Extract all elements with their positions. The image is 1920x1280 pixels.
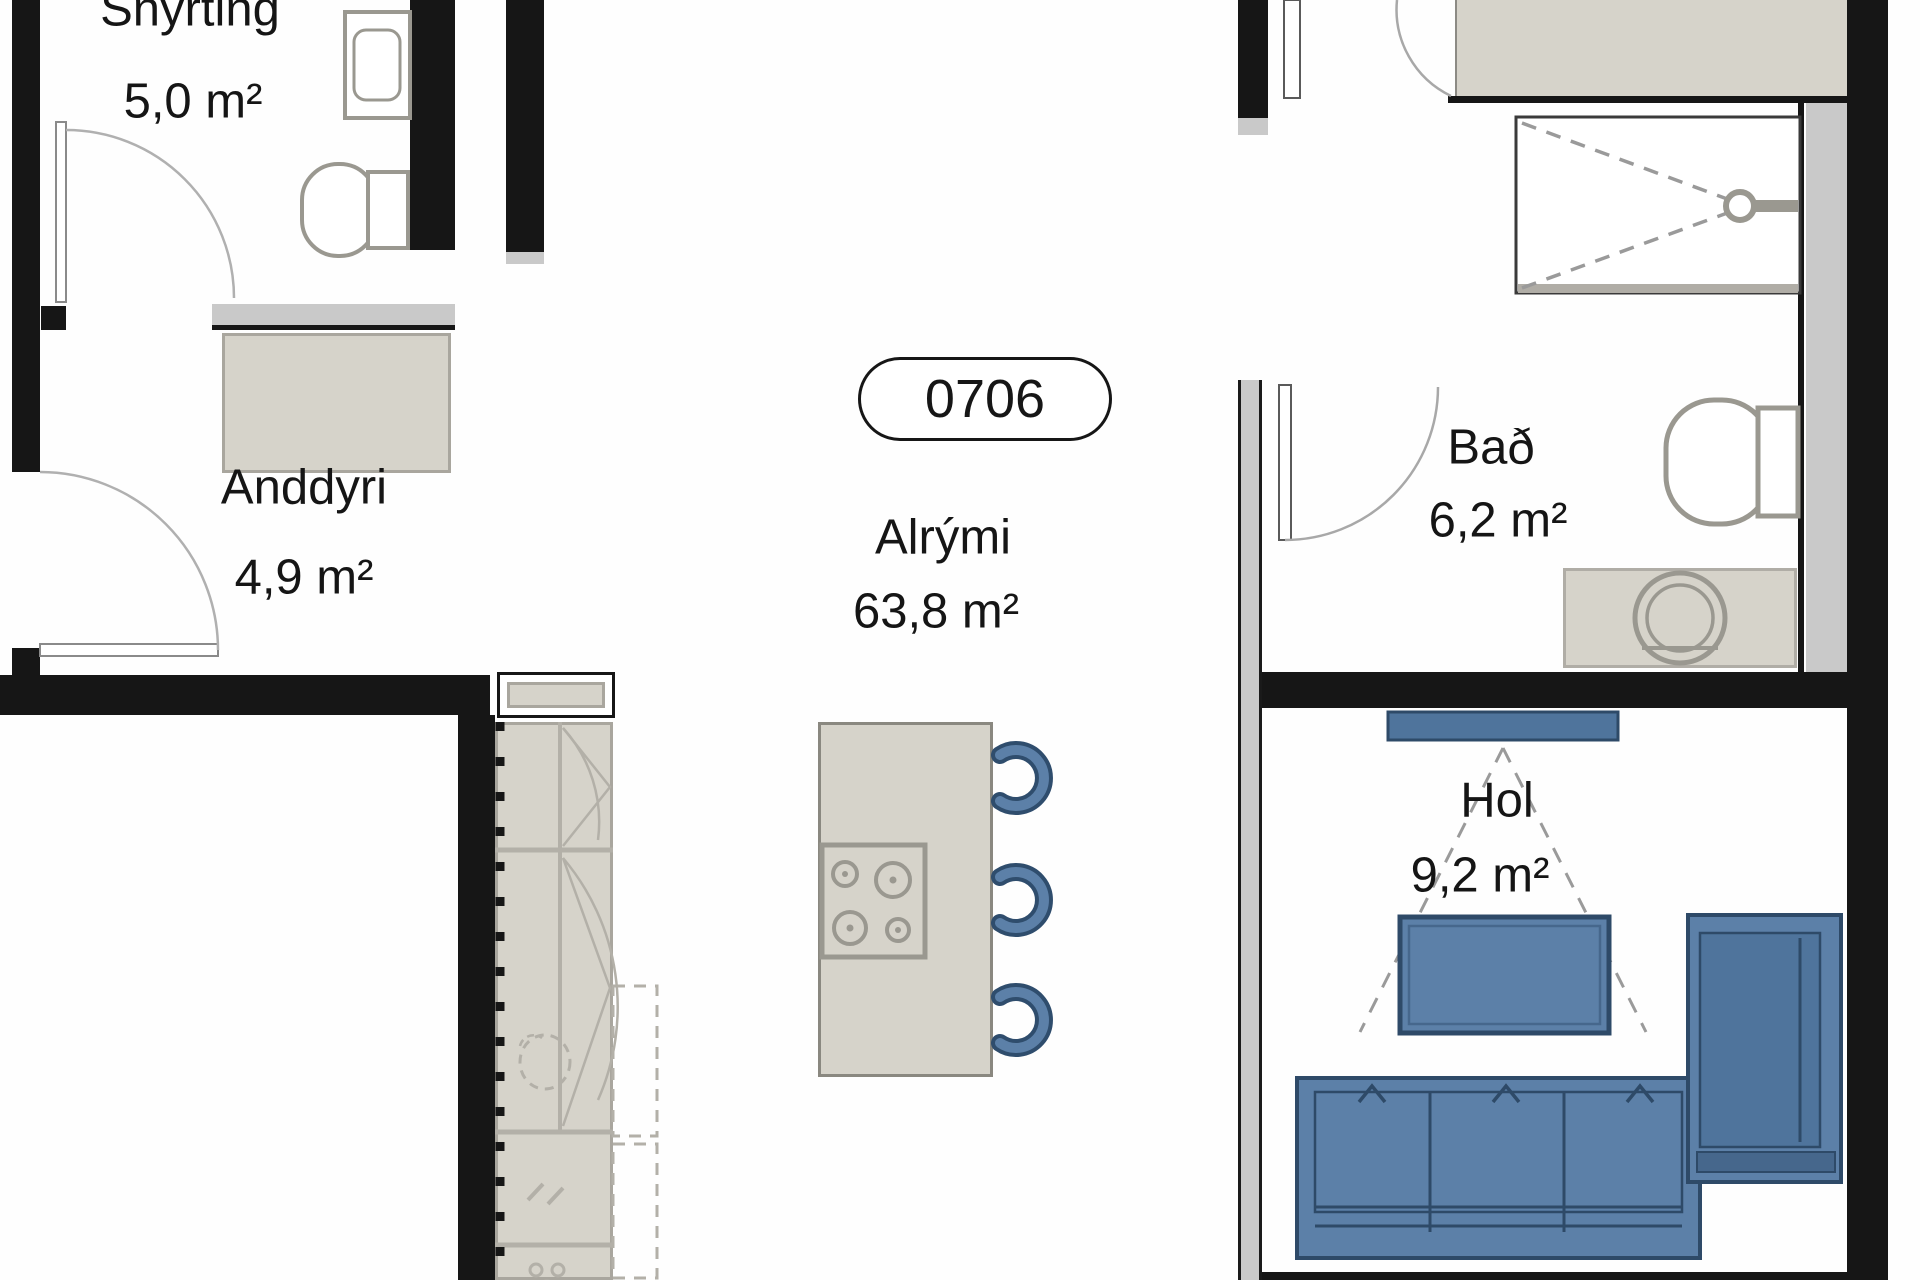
room-area-anddyri: 4,9 m² <box>235 552 374 603</box>
bad-toilet <box>1666 400 1798 524</box>
armchair <box>1688 915 1841 1182</box>
unit-number-badge: 0706 <box>858 357 1112 441</box>
top-right-closet <box>1455 0 1847 96</box>
tv <box>1388 712 1618 740</box>
snyrting-toilet <box>302 164 408 256</box>
room-area-hol: 9,2 m² <box>1411 850 1550 901</box>
bad-hol-wall <box>1262 672 1888 708</box>
washing-machine <box>1563 568 1797 668</box>
room-area-alrymi: 63,8 m² <box>853 586 1019 637</box>
main-horizontal-wall <box>0 675 490 715</box>
room-label-alrymi: Alrými <box>875 512 1011 563</box>
snyrting-sink <box>345 12 410 118</box>
top-second-wall <box>506 0 544 252</box>
top-right-door <box>1284 0 1451 98</box>
bad-inner-wall-line <box>1798 100 1804 672</box>
bad-shaft-strip <box>1806 100 1847 672</box>
kitchen-counter-window-inner <box>507 682 605 708</box>
shower <box>1516 117 1800 293</box>
kitchen-wall <box>458 715 495 1280</box>
bad-door-wall-cap <box>1238 118 1268 135</box>
room-area-bad: 6,2 m² <box>1429 495 1568 546</box>
left-exterior-wall-upper <box>12 0 40 472</box>
snyrting-door-stub <box>41 306 66 330</box>
bad-door <box>1279 385 1438 540</box>
kitchen-island <box>818 722 993 1077</box>
hol-bottom-wall <box>1262 1272 1847 1280</box>
snyrting-south-band <box>212 304 455 325</box>
room-area-snyrting: 5,0 m² <box>124 76 263 127</box>
hol-table <box>1400 917 1609 1033</box>
bad-door-wall-stub <box>1238 0 1268 118</box>
bar-stools <box>1000 750 1044 1048</box>
room-label-bad: Bað <box>1447 422 1534 473</box>
snyrting-right-wall <box>410 0 455 250</box>
anddyri-wardrobe <box>222 333 451 473</box>
bad-top-wall-line <box>1448 96 1847 103</box>
snyrting-south-line <box>212 325 455 330</box>
kitchen-cabinet-run <box>495 722 613 1280</box>
room-label-hol: Hol <box>1460 775 1534 826</box>
sofa <box>1297 1078 1700 1258</box>
room-label-snyrting: Snyrting <box>100 0 280 36</box>
top-second-wall-cap <box>506 252 544 264</box>
entrance-door <box>40 472 218 656</box>
floor-plan: Snyrting 5,0 m² Anddyri 4,9 m² Alrými 63… <box>0 0 1920 1280</box>
hol-left-partition <box>1238 380 1262 1280</box>
snyrting-door <box>56 122 234 302</box>
room-label-anddyri: Anddyri <box>221 462 387 513</box>
right-exterior-wall <box>1847 0 1888 1280</box>
shower-head-icon <box>1726 192 1798 220</box>
